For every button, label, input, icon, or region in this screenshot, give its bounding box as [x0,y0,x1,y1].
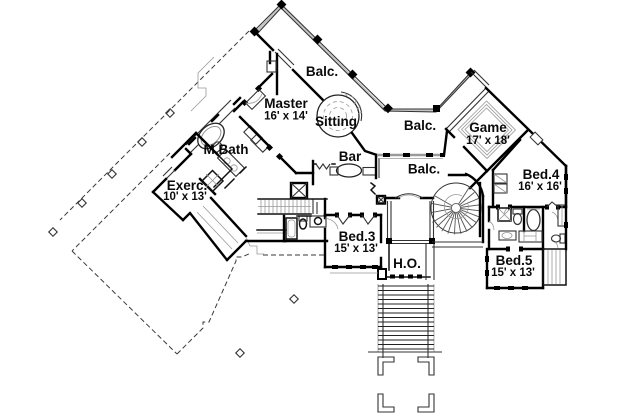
svg-text:15' x 13': 15' x 13' [334,243,378,255]
svg-text:H.O.: H.O. [393,256,421,271]
svg-text:Balc.: Balc. [408,162,440,177]
svg-text:Sitting: Sitting [315,114,357,129]
svg-text:Bar: Bar [339,149,362,164]
svg-text:16' x 14': 16' x 14' [264,111,308,123]
svg-text:M.Bath: M.Bath [204,142,249,157]
svg-text:Bed.5: Bed.5 [496,253,533,268]
svg-text:17' x 18': 17' x 18' [466,135,510,147]
svg-text:Game: Game [469,120,507,135]
svg-text:Bed.3: Bed.3 [339,229,376,244]
svg-text:Balc.: Balc. [404,118,436,133]
svg-text:Master: Master [264,96,308,111]
svg-text:16' x 16': 16' x 16' [518,181,562,193]
svg-text:15' x 13': 15' x 13' [491,267,535,279]
svg-text:Bed.4: Bed.4 [523,167,560,182]
svg-text:10' x 13': 10' x 13' [163,191,207,203]
svg-text:Balc.: Balc. [306,64,338,79]
